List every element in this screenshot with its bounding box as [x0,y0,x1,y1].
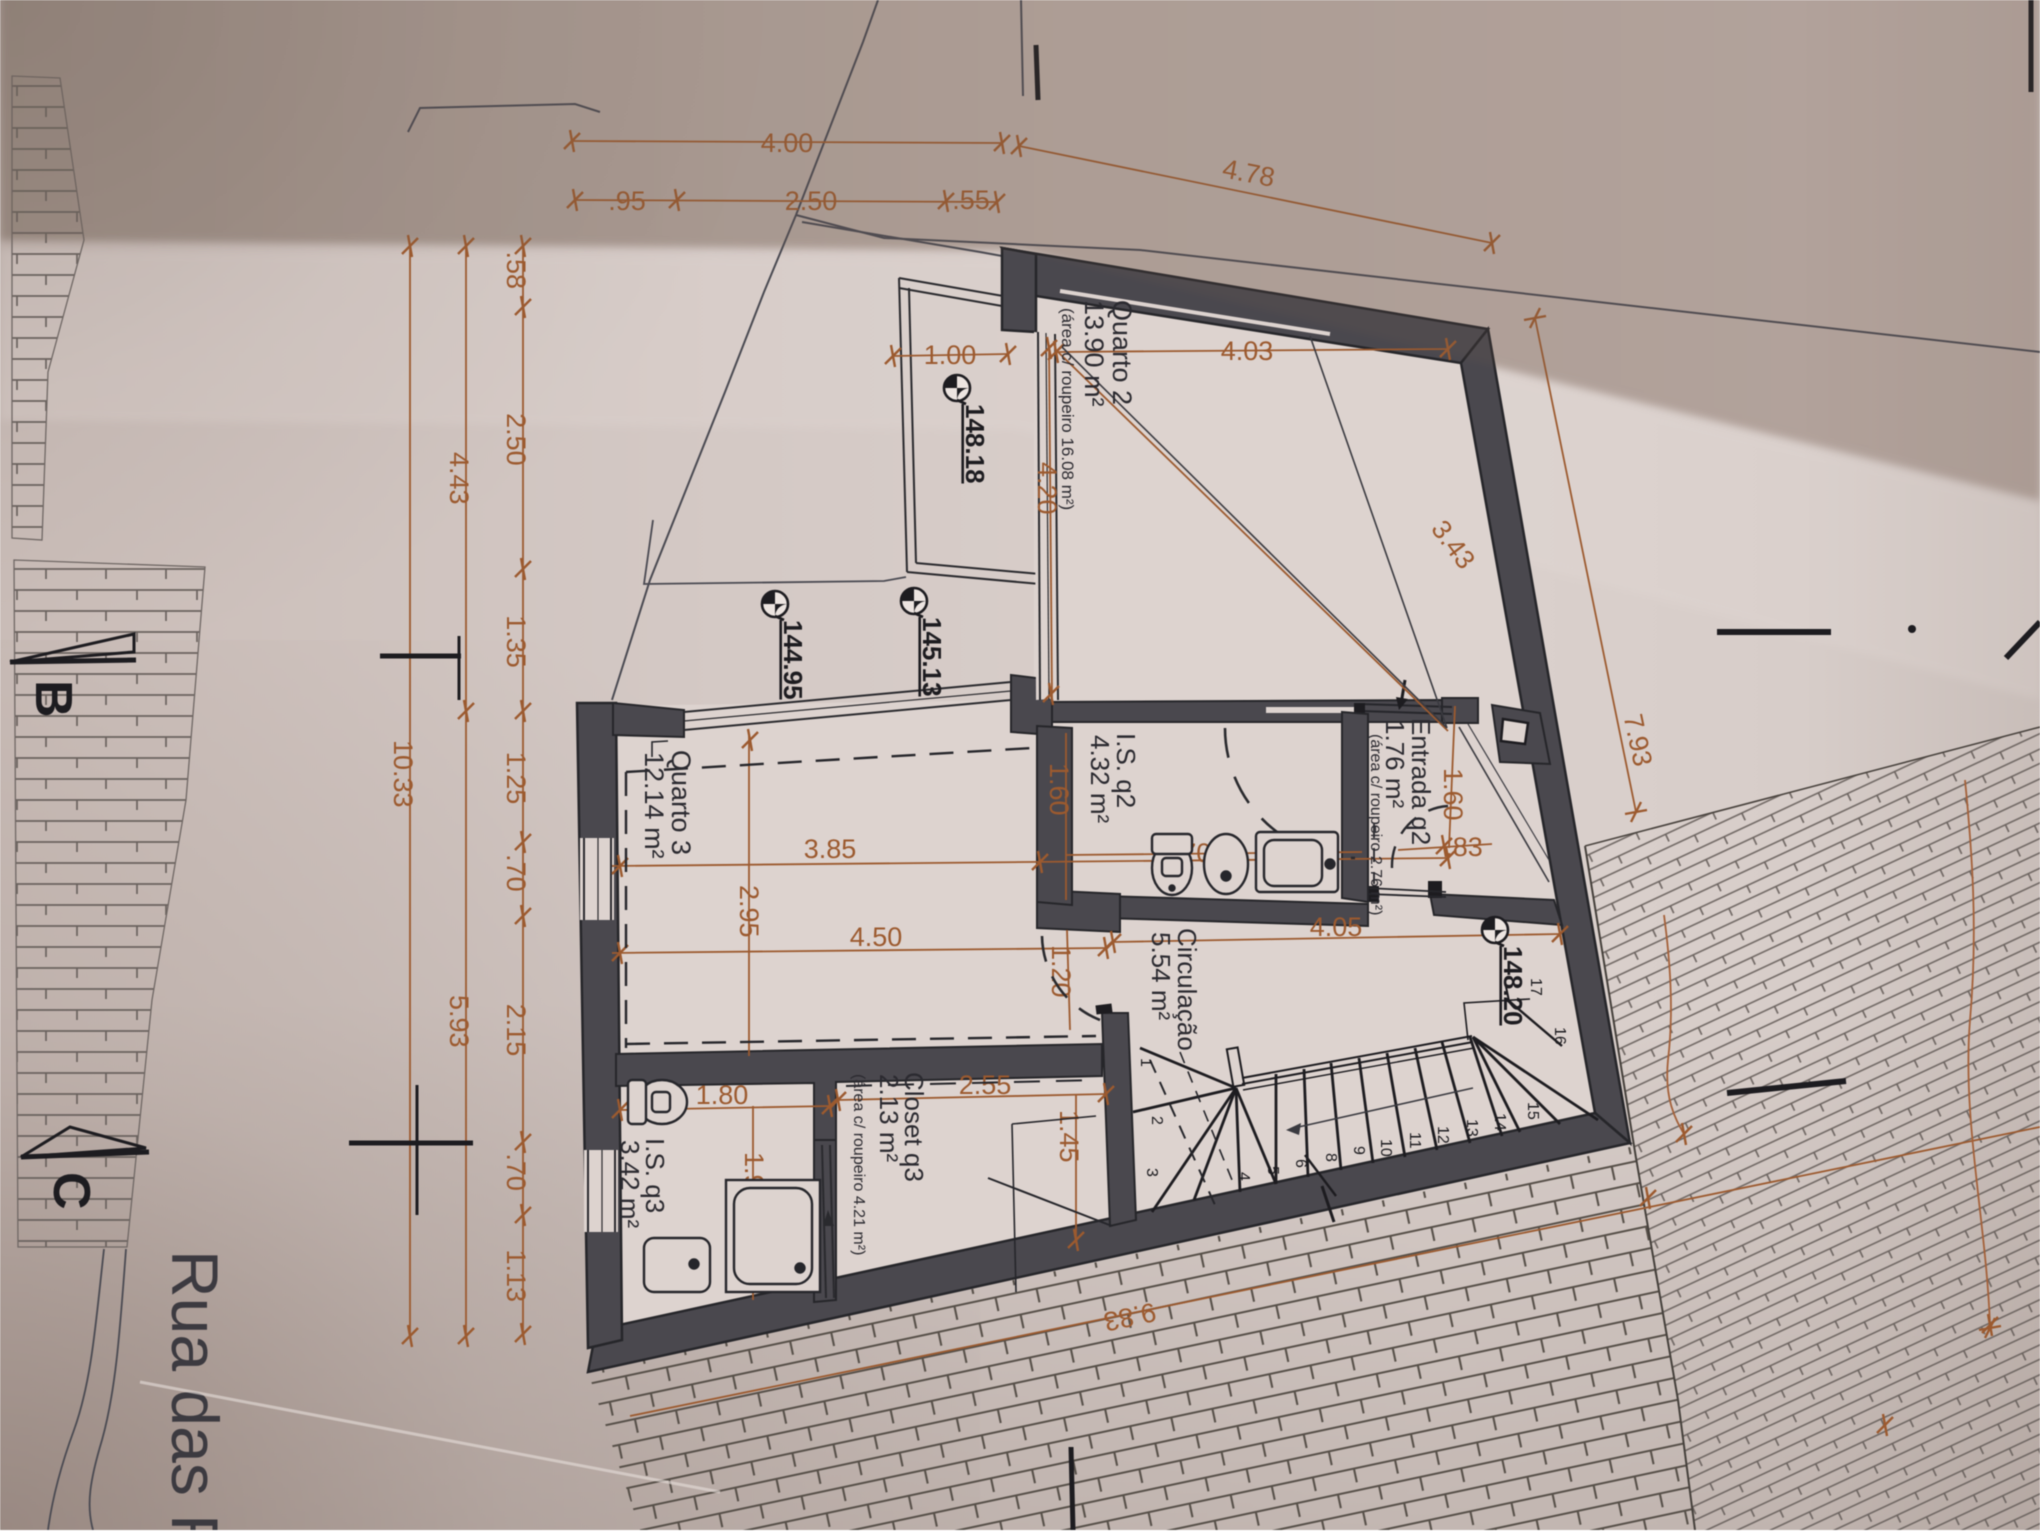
svg-text:1.60: 1.60 [1438,768,1468,821]
svg-text:4.20: 4.20 [1032,462,1062,515]
svg-text:Quarto 3: Quarto 3 [666,750,696,855]
svg-text:1.35: 1.35 [501,615,531,668]
svg-text:4.05: 4.05 [1310,912,1363,942]
svg-text:.58: .58 [501,251,531,289]
svg-text:4.32 m²: 4.32 m² [1085,735,1115,823]
svg-text:144.95: 144.95 [778,620,808,700]
svg-text:2: 2 [1148,1116,1165,1125]
svg-text:4.43: 4.43 [444,452,474,505]
svg-text:2.13 m²: 2.13 m² [874,1074,904,1162]
svg-text:17: 17 [1527,978,1544,996]
svg-text:B: B [24,680,82,718]
svg-text:10.33: 10.33 [388,740,418,808]
svg-text:145.13: 145.13 [917,617,947,697]
svg-text:(área c/ roupeiro 4.21 m²): (área c/ roupeiro 4.21 m²) [850,1074,867,1255]
svg-text:(área c/ roupeiro 2.76 m²): (área c/ roupeiro 2.76 m²) [1367,734,1384,915]
svg-text:3.85: 3.85 [804,834,857,864]
svg-text:(área c/ roupeiro 16.08 m²): (área c/ roupeiro 16.08 m²) [1058,308,1077,510]
svg-text:5.93: 5.93 [444,995,474,1048]
svg-text:2.55: 2.55 [959,1070,1012,1100]
svg-text:.70: .70 [501,1153,531,1191]
svg-text:5.54 m²: 5.54 m² [1146,932,1176,1020]
svg-text:Quarto 2: Quarto 2 [1107,300,1137,405]
svg-text:1.60: 1.60 [1044,763,1074,816]
svg-text:13.90 m²: 13.90 m² [1079,300,1109,407]
svg-text:12: 12 [1434,1126,1451,1144]
svg-text:3.42 m²: 3.42 m² [615,1140,645,1228]
svg-text:2.15: 2.15 [501,1004,531,1057]
svg-text:C: C [42,1172,100,1210]
svg-text:9: 9 [1350,1146,1367,1155]
svg-text:1.80: 1.80 [696,1080,749,1110]
svg-text:.70: .70 [501,854,531,892]
svg-text:1: 1 [1137,1058,1154,1067]
svg-text:1.25: 1.25 [501,752,531,805]
svg-text:5: 5 [1264,1166,1281,1175]
svg-text:148.18: 148.18 [960,404,990,484]
svg-text:4.50: 4.50 [850,922,903,952]
svg-text:Rua das Fl: Rua das Fl [158,1250,232,1530]
svg-text:2.95: 2.95 [734,885,764,938]
svg-text:8: 8 [1322,1153,1339,1162]
svg-text:2.50: 2.50 [501,413,531,466]
svg-text:14: 14 [1491,1113,1508,1131]
svg-text:16: 16 [1551,1027,1568,1045]
svg-text:15: 15 [1524,1102,1541,1120]
svg-text:13: 13 [1463,1119,1480,1137]
svg-text:4.03: 4.03 [1221,336,1274,366]
svg-text:1.13: 1.13 [501,1249,531,1302]
svg-text:12.14 m²: 12.14 m² [639,752,669,859]
svg-text:1.00: 1.00 [924,340,977,370]
svg-text:.83: .83 [1445,832,1483,862]
svg-text:4: 4 [1235,1172,1252,1181]
svg-text:10: 10 [1377,1139,1394,1157]
svg-text:6: 6 [1292,1159,1309,1168]
svg-text:11: 11 [1406,1132,1423,1149]
svg-text:148.20: 148.20 [1498,946,1528,1026]
svg-text:3: 3 [1143,1168,1160,1177]
